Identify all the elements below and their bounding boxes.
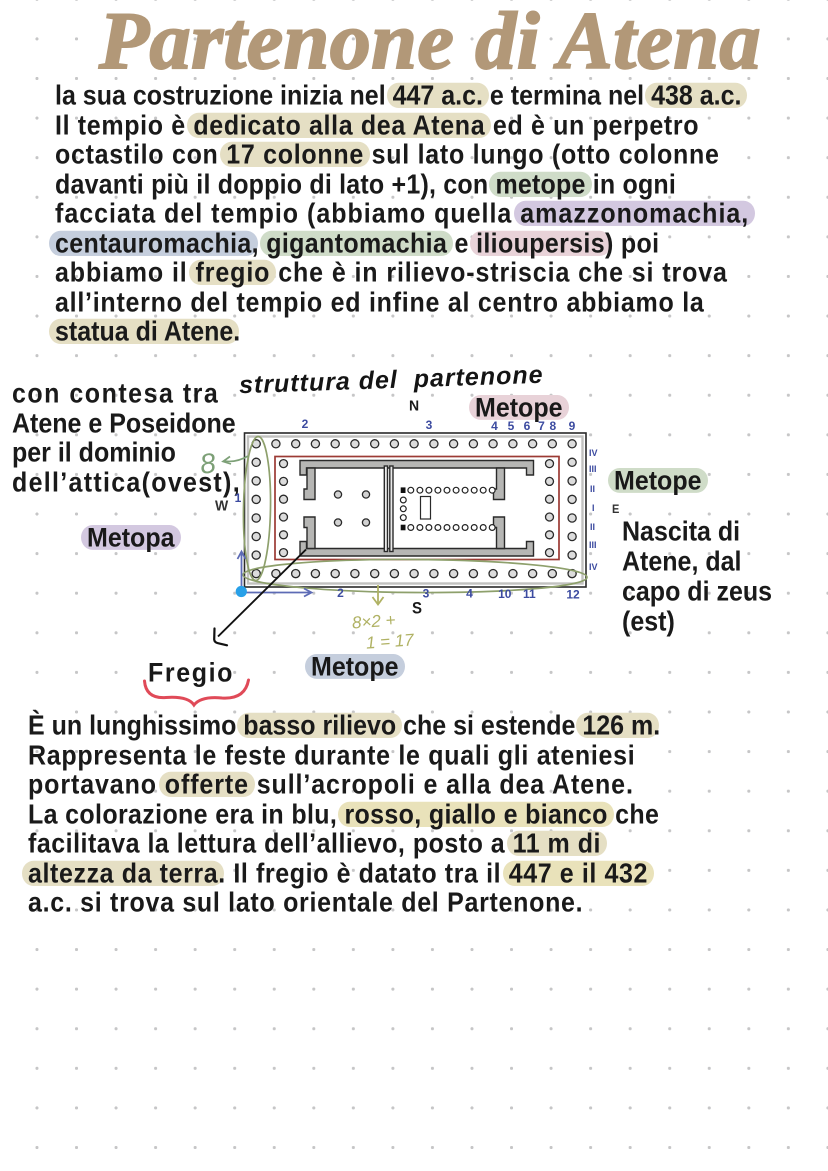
svg-text:2: 2: [302, 417, 309, 431]
svg-text:5: 5: [508, 419, 515, 433]
svg-text:3: 3: [423, 587, 430, 601]
svg-text:III: III: [589, 464, 597, 474]
svg-text:11: 11: [523, 587, 536, 601]
svg-text:4: 4: [466, 587, 473, 601]
svg-text:2: 2: [337, 586, 344, 600]
svg-text:7: 7: [538, 419, 545, 433]
svg-text:1: 1: [235, 491, 242, 505]
svg-text:IV: IV: [589, 448, 598, 458]
svg-text:12: 12: [566, 588, 580, 602]
svg-text:3: 3: [426, 418, 433, 432]
svg-text:I: I: [592, 503, 595, 513]
svg-text:III: III: [589, 540, 597, 550]
svg-text:8: 8: [549, 419, 556, 433]
svg-text:IV: IV: [589, 562, 598, 572]
svg-text:9: 9: [569, 419, 576, 433]
svg-text:II: II: [590, 484, 595, 494]
svg-text:4: 4: [491, 419, 498, 433]
svg-text:6: 6: [524, 419, 531, 433]
svg-text:II: II: [590, 522, 595, 532]
svg-text:10: 10: [498, 587, 512, 601]
